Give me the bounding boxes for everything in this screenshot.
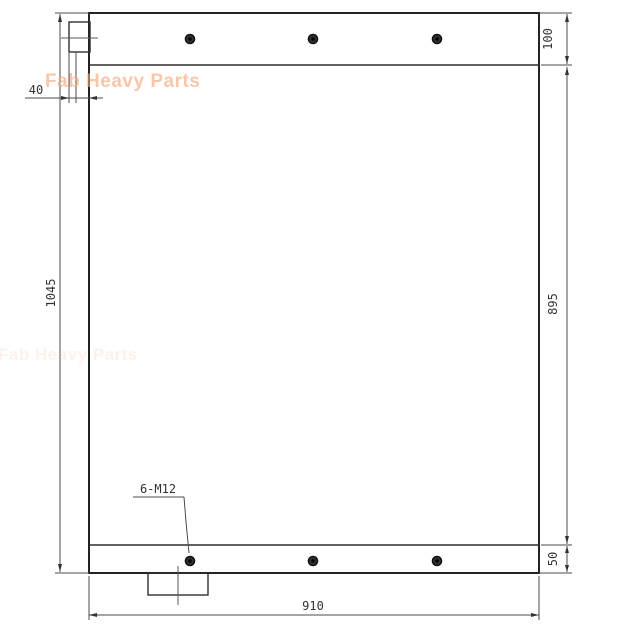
bolt-hole xyxy=(308,556,317,565)
left-tab xyxy=(69,22,90,52)
extension-lines xyxy=(55,13,572,620)
dim-label-40: 40 xyxy=(29,83,43,97)
part-outline xyxy=(69,13,539,595)
dim-label-50: 50 xyxy=(546,552,560,566)
dimension-core-height: 895 xyxy=(546,67,569,544)
dimension-overall-width: 910 xyxy=(89,599,539,617)
bolt-hole xyxy=(432,34,441,43)
dim-label-895: 895 xyxy=(546,293,560,315)
bolt-hole xyxy=(432,556,441,565)
dim-label-910: 910 xyxy=(302,599,324,613)
dimension-top-flange-height: 100 xyxy=(541,14,569,64)
dimension-bottom-flange-height: 50 xyxy=(546,546,569,572)
callout-mounting-holes: 6-M12 xyxy=(133,482,189,553)
centerlines xyxy=(61,38,178,605)
bolt-hole xyxy=(185,556,194,565)
callout-label-6-M12: 6-M12 xyxy=(140,482,176,496)
watermark-text: Fab Heavy Parts xyxy=(45,71,200,92)
watermarks: Fab Heavy Parts Fab Heavy Parts xyxy=(0,71,200,364)
dimension-drawing: 100 895 50 1045 40 910 6-M12 xyxy=(0,0,640,640)
dim-label-100: 100 xyxy=(541,28,555,50)
dim-label-1045: 1045 xyxy=(44,279,58,308)
bolt-hole xyxy=(308,34,317,43)
bolt-hole xyxy=(185,34,194,43)
watermark-text-faint: Fab Heavy Parts xyxy=(0,345,138,364)
technical-drawing-page: 100 895 50 1045 40 910 6-M12 xyxy=(0,0,640,640)
bolt-holes xyxy=(185,34,441,565)
